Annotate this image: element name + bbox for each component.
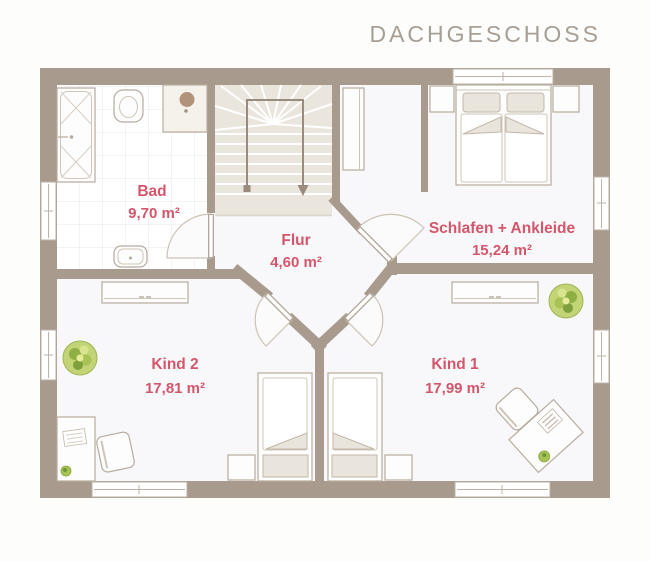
nightstand-right [553, 86, 579, 112]
building: Bad 9,70 m² Flur 4,60 m² Schlafen + Ankl… [40, 68, 610, 498]
window-left-kind2 [41, 330, 56, 380]
label-schlafen-area: 15,24 m² [472, 242, 532, 259]
kind2-plant [63, 341, 97, 375]
pillow-left [463, 93, 500, 112]
kind2-chair [96, 431, 136, 473]
wall-ankleide-partition [421, 85, 428, 192]
kind1-bed [328, 373, 382, 481]
kind2-bed [258, 373, 312, 481]
floor-plan-drawing: DACHGESCHOSS [0, 0, 650, 561]
label-kind1-area: 17,99 m² [425, 380, 485, 397]
shower-drain [184, 109, 188, 113]
label-bad-area: 9,70 m² [128, 205, 180, 222]
kind1-plant [549, 284, 583, 318]
label-flur-area: 4,60 m² [270, 254, 322, 271]
shower [163, 85, 207, 132]
kind2-bed-foot [263, 455, 308, 477]
shower-head [180, 92, 195, 107]
label-kind2-area: 17,81 m² [145, 380, 205, 397]
nightstand-left [430, 86, 454, 112]
label-bad-name: Bad [137, 183, 166, 200]
label-flur-name: Flur [281, 232, 310, 249]
pillow-right [507, 93, 544, 112]
label-kind1-name: Kind 1 [431, 356, 479, 373]
wall-kind2-kind1 [315, 341, 324, 481]
wall-bad-kind2 [57, 269, 241, 279]
kind1-wardrobe [452, 282, 538, 303]
label-kind2-name: Kind 2 [151, 356, 198, 373]
plan-title: DACHGESCHOSS [369, 21, 601, 47]
floor-plan-page: DACHGESCHOSS [0, 0, 650, 561]
kind2-desk-plant [61, 466, 71, 476]
window-left-bad [41, 182, 56, 240]
wall-bad-stairs [207, 85, 215, 213]
window-top-schlafen [453, 69, 553, 84]
wall-schlafen-kind1 [392, 263, 593, 274]
kind1-bed-foot [332, 455, 377, 477]
stairs-floor [215, 85, 332, 215]
bathtub [57, 88, 95, 182]
wall-stairs-schlafen [332, 85, 340, 203]
ankleide-wardrobe [343, 88, 364, 170]
window-bottom-kind2 [92, 482, 187, 497]
kind2-wardrobe [102, 282, 188, 303]
stairs-start-marker [244, 185, 251, 192]
kind1-nightstand [385, 455, 412, 480]
window-bottom-kind1 [455, 482, 550, 497]
window-right-kind1 [594, 330, 609, 383]
kind2-desk-papers [63, 429, 87, 447]
double-bed [456, 85, 551, 185]
kind2-nightstand [228, 455, 255, 480]
label-schlafen-name: Schlafen + Ankleide [429, 220, 576, 237]
kind2-desk [57, 417, 95, 481]
sink [114, 246, 147, 267]
window-right-schlafen [594, 177, 609, 230]
stairs-straight-treads [216, 134, 332, 194]
toilet [114, 90, 143, 122]
